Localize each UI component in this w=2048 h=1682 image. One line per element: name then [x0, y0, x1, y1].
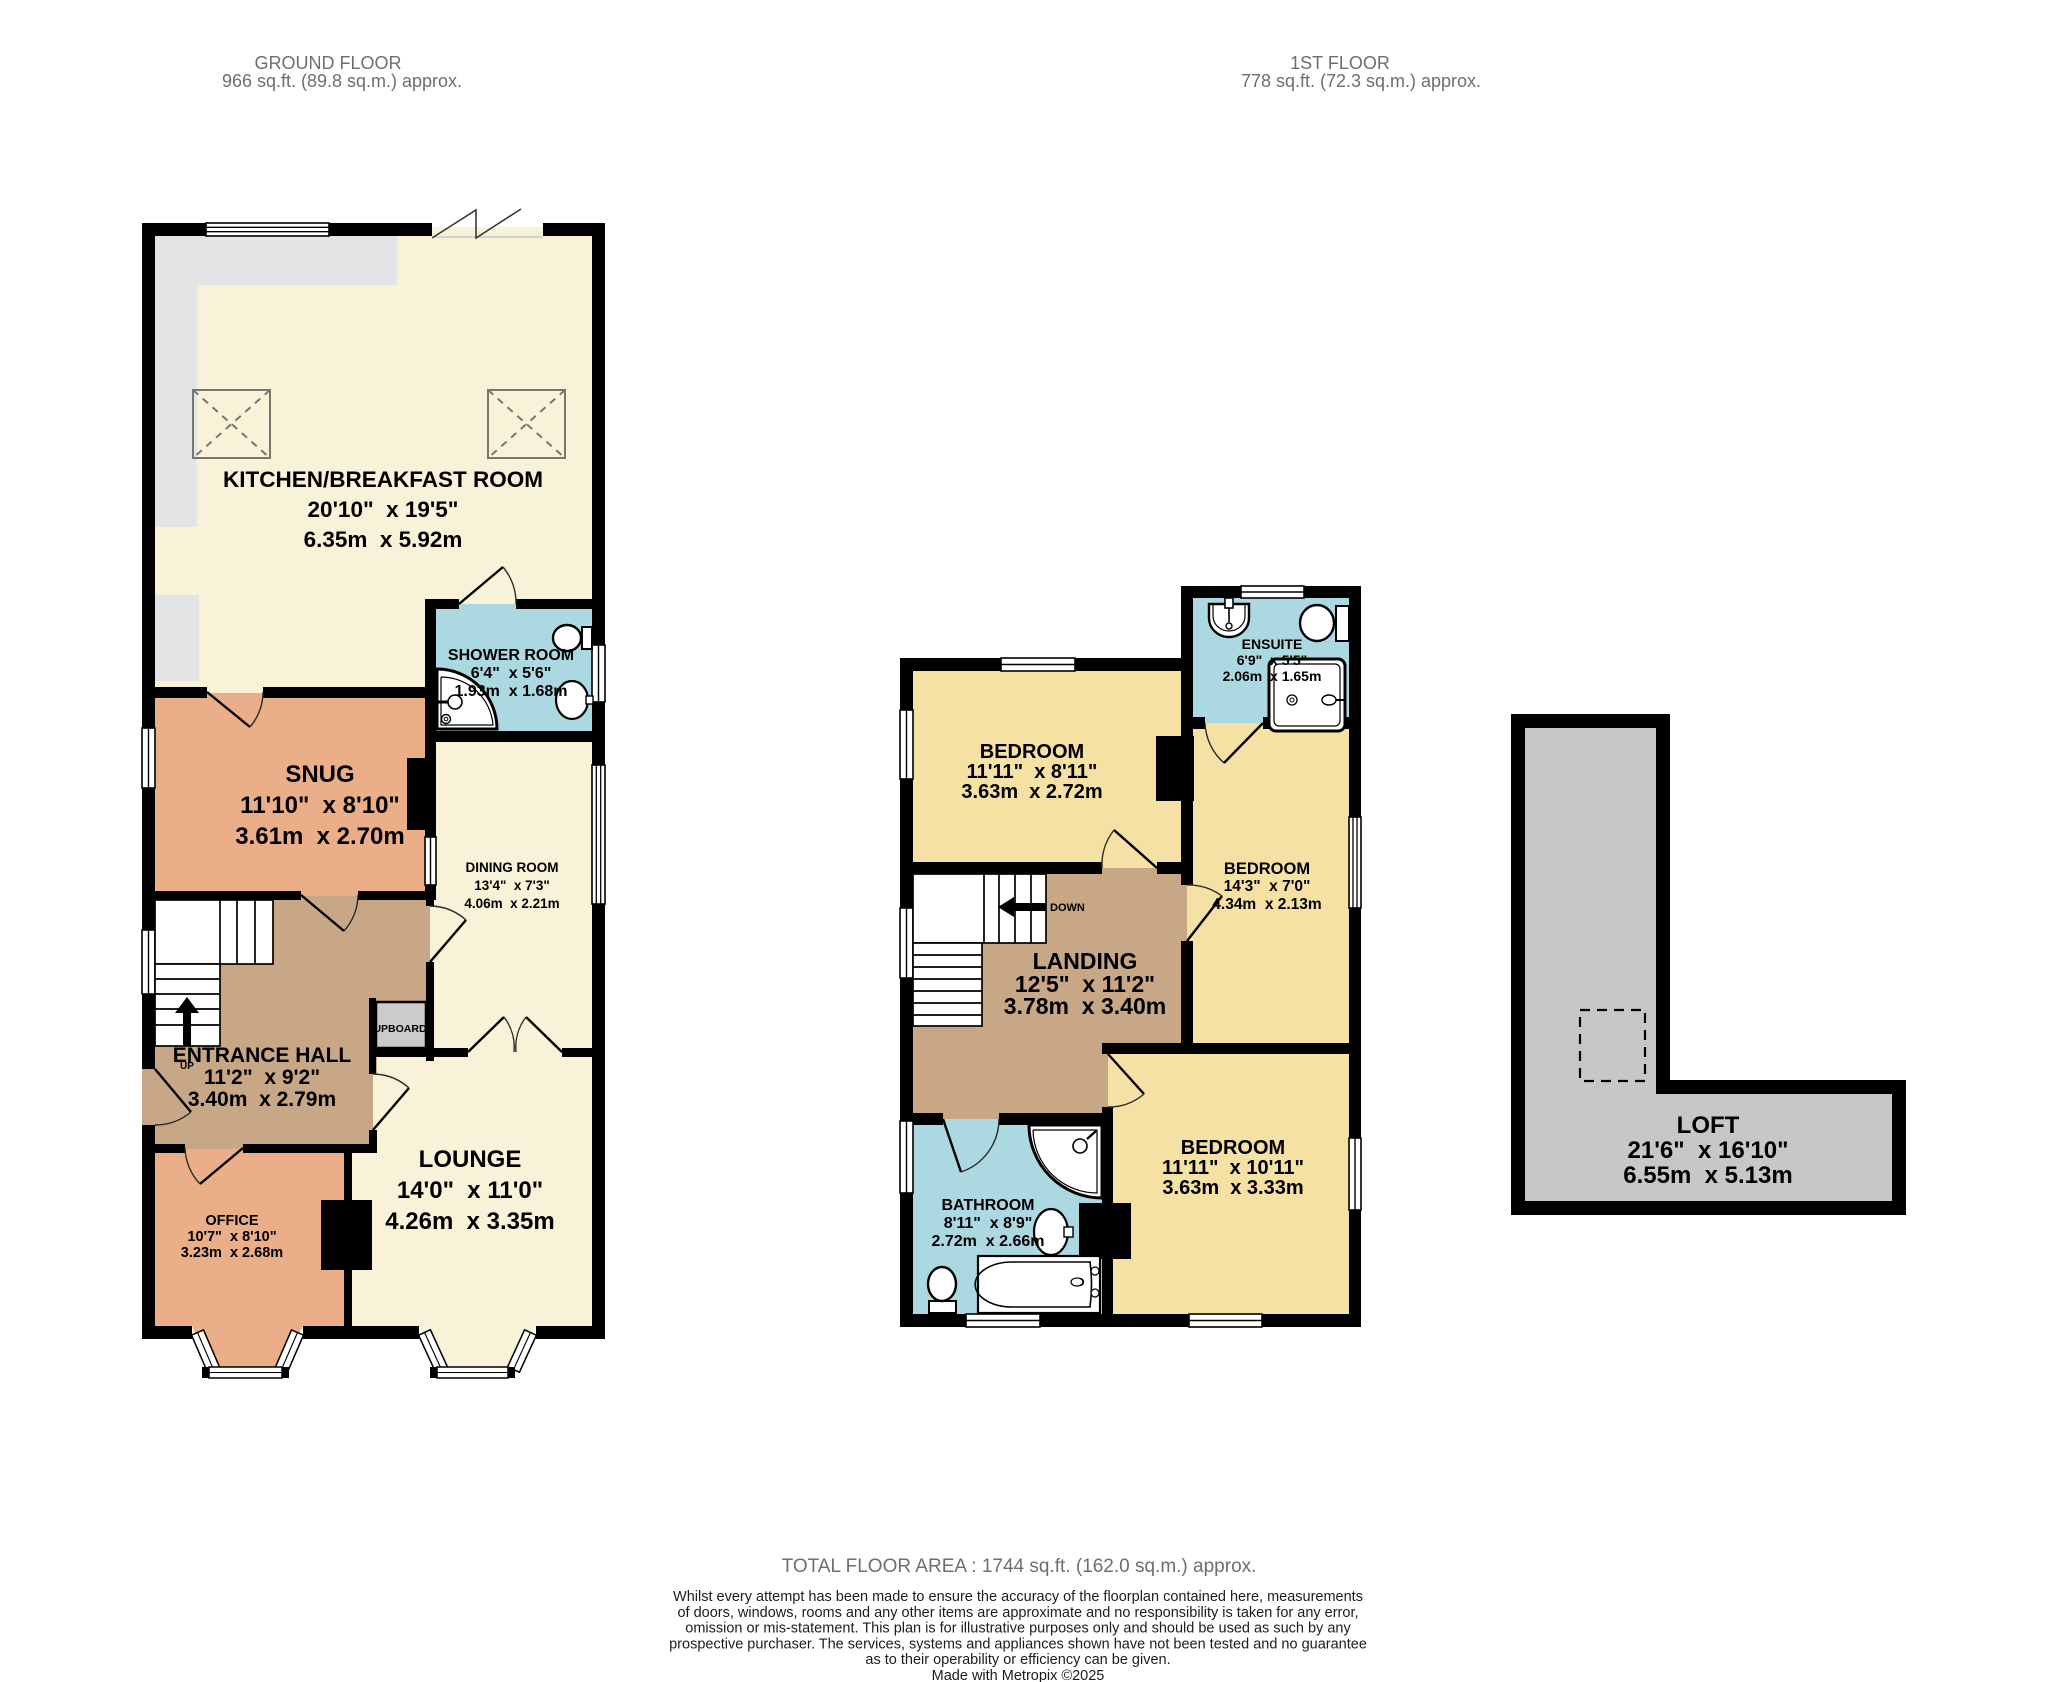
- svg-text:6.35m x 5.92m: 6.35m x 5.92m: [304, 527, 463, 552]
- svg-text:11'10" x 8'10": 11'10" x 8'10": [240, 792, 400, 819]
- svg-text:TOTAL FLOOR AREA : 1744 sq.ft.: TOTAL FLOOR AREA : 1744 sq.ft. (162.0 sq…: [782, 1556, 1257, 1577]
- svg-text:KITCHEN/BREAKFAST ROOM: KITCHEN/BREAKFAST ROOM: [223, 467, 543, 492]
- svg-text:2.06m x 1.65m: 2.06m x 1.65m: [1223, 668, 1322, 684]
- svg-text:1.93m x 1.68m: 1.93m x 1.68m: [455, 683, 568, 700]
- svg-text:DINING ROOM: DINING ROOM: [466, 860, 559, 875]
- svg-text:10'7" x 8'10": 10'7" x 8'10": [187, 1229, 276, 1245]
- svg-text:8'11" x 8'9": 8'11" x 8'9": [944, 1215, 1033, 1232]
- svg-text:LOFT: LOFT: [1677, 1112, 1740, 1139]
- svg-text:11'11" x 8'11": 11'11" x 8'11": [967, 761, 1098, 783]
- svg-text:21'6" x 16'10": 21'6" x 16'10": [1628, 1137, 1789, 1164]
- svg-text:6.55m x 5.13m: 6.55m x 5.13m: [1623, 1162, 1792, 1189]
- svg-text:as to their operability or eff: as to their operability or efficiency ca…: [865, 1652, 1170, 1668]
- svg-text:14'0" x 11'0": 14'0" x 11'0": [397, 1177, 543, 1204]
- svg-text:omission or mis-statement. Thi: omission or mis-statement. This plan is …: [685, 1621, 1351, 1637]
- svg-text:3.23m x 2.68m: 3.23m x 2.68m: [181, 1245, 283, 1261]
- svg-text:13'4" x 7'3": 13'4" x 7'3": [474, 878, 550, 893]
- svg-text:3.78m x 3.40m: 3.78m x 3.40m: [1004, 993, 1166, 1019]
- svg-text:4.26m x 3.35m: 4.26m x 3.35m: [385, 1208, 554, 1235]
- svg-text:20'10" x 19'5": 20'10" x 19'5": [308, 497, 459, 522]
- svg-text:of doors, windows, rooms and a: of doors, windows, rooms and any other i…: [677, 1605, 1358, 1621]
- svg-text:3.40m x 2.79m: 3.40m x 2.79m: [188, 1088, 336, 1111]
- svg-text:BEDROOM: BEDROOM: [1224, 860, 1310, 878]
- svg-text:6'9" x 5'5": 6'9" x 5'5": [1237, 652, 1308, 668]
- svg-text:LOUNGE: LOUNGE: [419, 1146, 522, 1173]
- svg-text:BEDROOM: BEDROOM: [1181, 1137, 1285, 1159]
- svg-text:4.06m x 2.21m: 4.06m x 2.21m: [464, 896, 559, 911]
- svg-text:BEDROOM: BEDROOM: [980, 741, 1084, 763]
- svg-text:1ST FLOOR: 1ST FLOOR: [1290, 53, 1390, 73]
- svg-text:3.61m x 2.70m: 3.61m x 2.70m: [235, 823, 404, 850]
- svg-text:prospective purchaser. The ser: prospective purchaser. The services, sys…: [669, 1636, 1367, 1652]
- svg-text:ENSUITE: ENSUITE: [1242, 636, 1303, 652]
- svg-text:Made with Metropix ©2025: Made with Metropix ©2025: [932, 1668, 1105, 1682]
- svg-text:SHOWER ROOM: SHOWER ROOM: [448, 647, 574, 664]
- svg-text:11'2" x 9'2": 11'2" x 9'2": [204, 1066, 320, 1089]
- svg-text:DOWN: DOWN: [1050, 902, 1085, 914]
- svg-text:UPBOARD: UPBOARD: [373, 1023, 427, 1035]
- svg-text:SNUG: SNUG: [285, 761, 354, 788]
- svg-text:14'3" x 7'0": 14'3" x 7'0": [1224, 878, 1311, 895]
- svg-text:GROUND FLOOR: GROUND FLOOR: [254, 53, 401, 73]
- svg-text:OFFICE: OFFICE: [205, 1213, 258, 1229]
- svg-text:3.63m x 3.33m: 3.63m x 3.33m: [1162, 1177, 1303, 1199]
- svg-text:Whilst every attempt has been: Whilst every attempt has been made to en…: [673, 1589, 1363, 1605]
- svg-text:2.72m x 2.66m: 2.72m x 2.66m: [932, 1233, 1045, 1250]
- svg-text:11'11" x 10'11": 11'11" x 10'11": [1162, 1157, 1304, 1179]
- svg-text:ENTRANCE HALL: ENTRANCE HALL: [173, 1044, 352, 1067]
- svg-text:BATHROOM: BATHROOM: [941, 1197, 1034, 1214]
- svg-text:3.63m x 2.72m: 3.63m x 2.72m: [961, 781, 1102, 803]
- svg-text:4.34m x 2.13m: 4.34m x 2.13m: [1212, 896, 1321, 913]
- svg-text:6'4" x 5'6": 6'4" x 5'6": [471, 665, 552, 682]
- svg-text:778 sq.ft. (72.3 sq.m.) approx: 778 sq.ft. (72.3 sq.m.) approx.: [1241, 71, 1481, 91]
- svg-text:966 sq.ft. (89.8 sq.m.) approx: 966 sq.ft. (89.8 sq.m.) approx.: [222, 71, 462, 91]
